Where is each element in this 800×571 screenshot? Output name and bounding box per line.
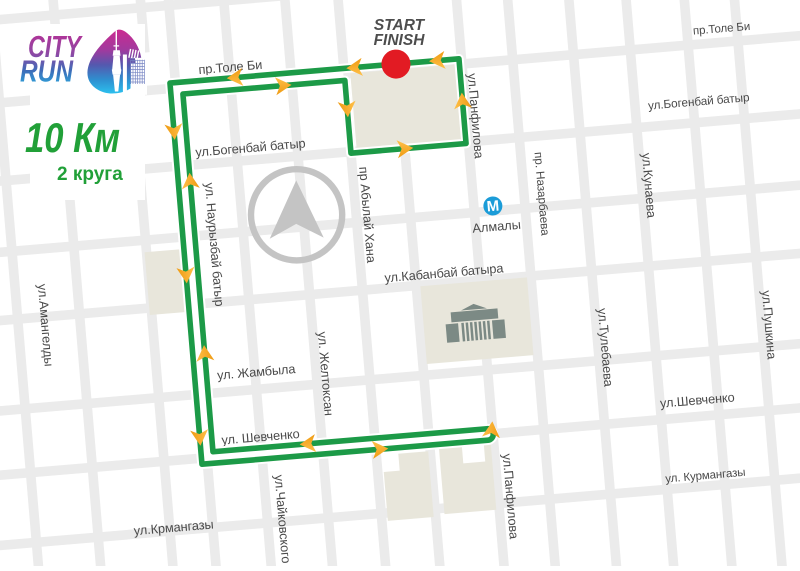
svg-text:М: М [486, 197, 500, 215]
svg-text:RUN: RUN [20, 54, 73, 89]
svg-text:10 Км: 10 Км [25, 114, 120, 161]
svg-text:FINISH: FINISH [374, 32, 426, 49]
svg-text:2 круга: 2 круга [57, 164, 123, 185]
